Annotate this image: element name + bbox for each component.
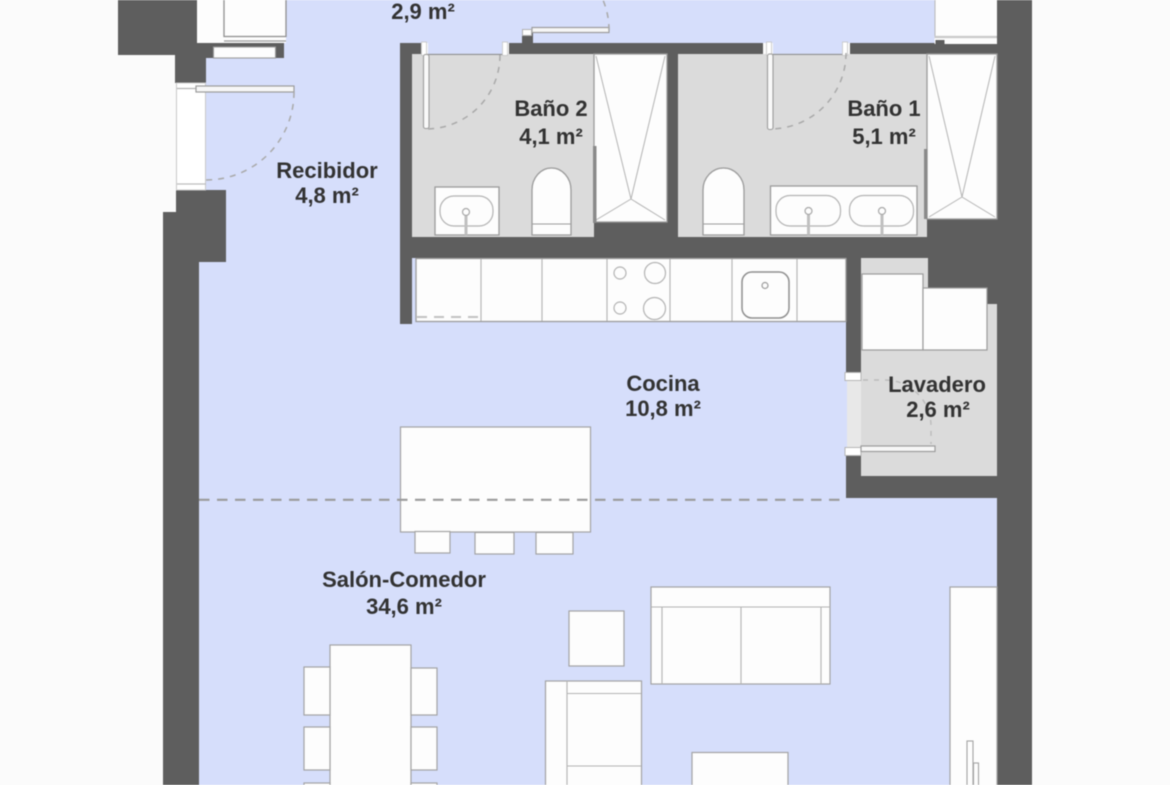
svg-text:Salón-Comedor: Salón-Comedor — [322, 567, 486, 592]
svg-text:2,9 m²: 2,9 m² — [391, 0, 455, 24]
svg-text:5,1 m²: 5,1 m² — [852, 124, 916, 149]
svg-text:Baño 2: Baño 2 — [514, 96, 587, 121]
svg-text:Recibidor: Recibidor — [276, 158, 378, 183]
svg-text:4,1 m²: 4,1 m² — [519, 124, 583, 149]
svg-text:Baño 1: Baño 1 — [847, 96, 920, 121]
svg-text:4,8 m²: 4,8 m² — [295, 183, 359, 208]
svg-text:2,6 m²: 2,6 m² — [906, 397, 970, 422]
svg-text:34,6 m²: 34,6 m² — [366, 594, 442, 619]
svg-text:10,8 m²: 10,8 m² — [625, 396, 701, 421]
svg-text:Cocina: Cocina — [626, 371, 700, 396]
svg-text:Lavadero: Lavadero — [888, 372, 986, 397]
